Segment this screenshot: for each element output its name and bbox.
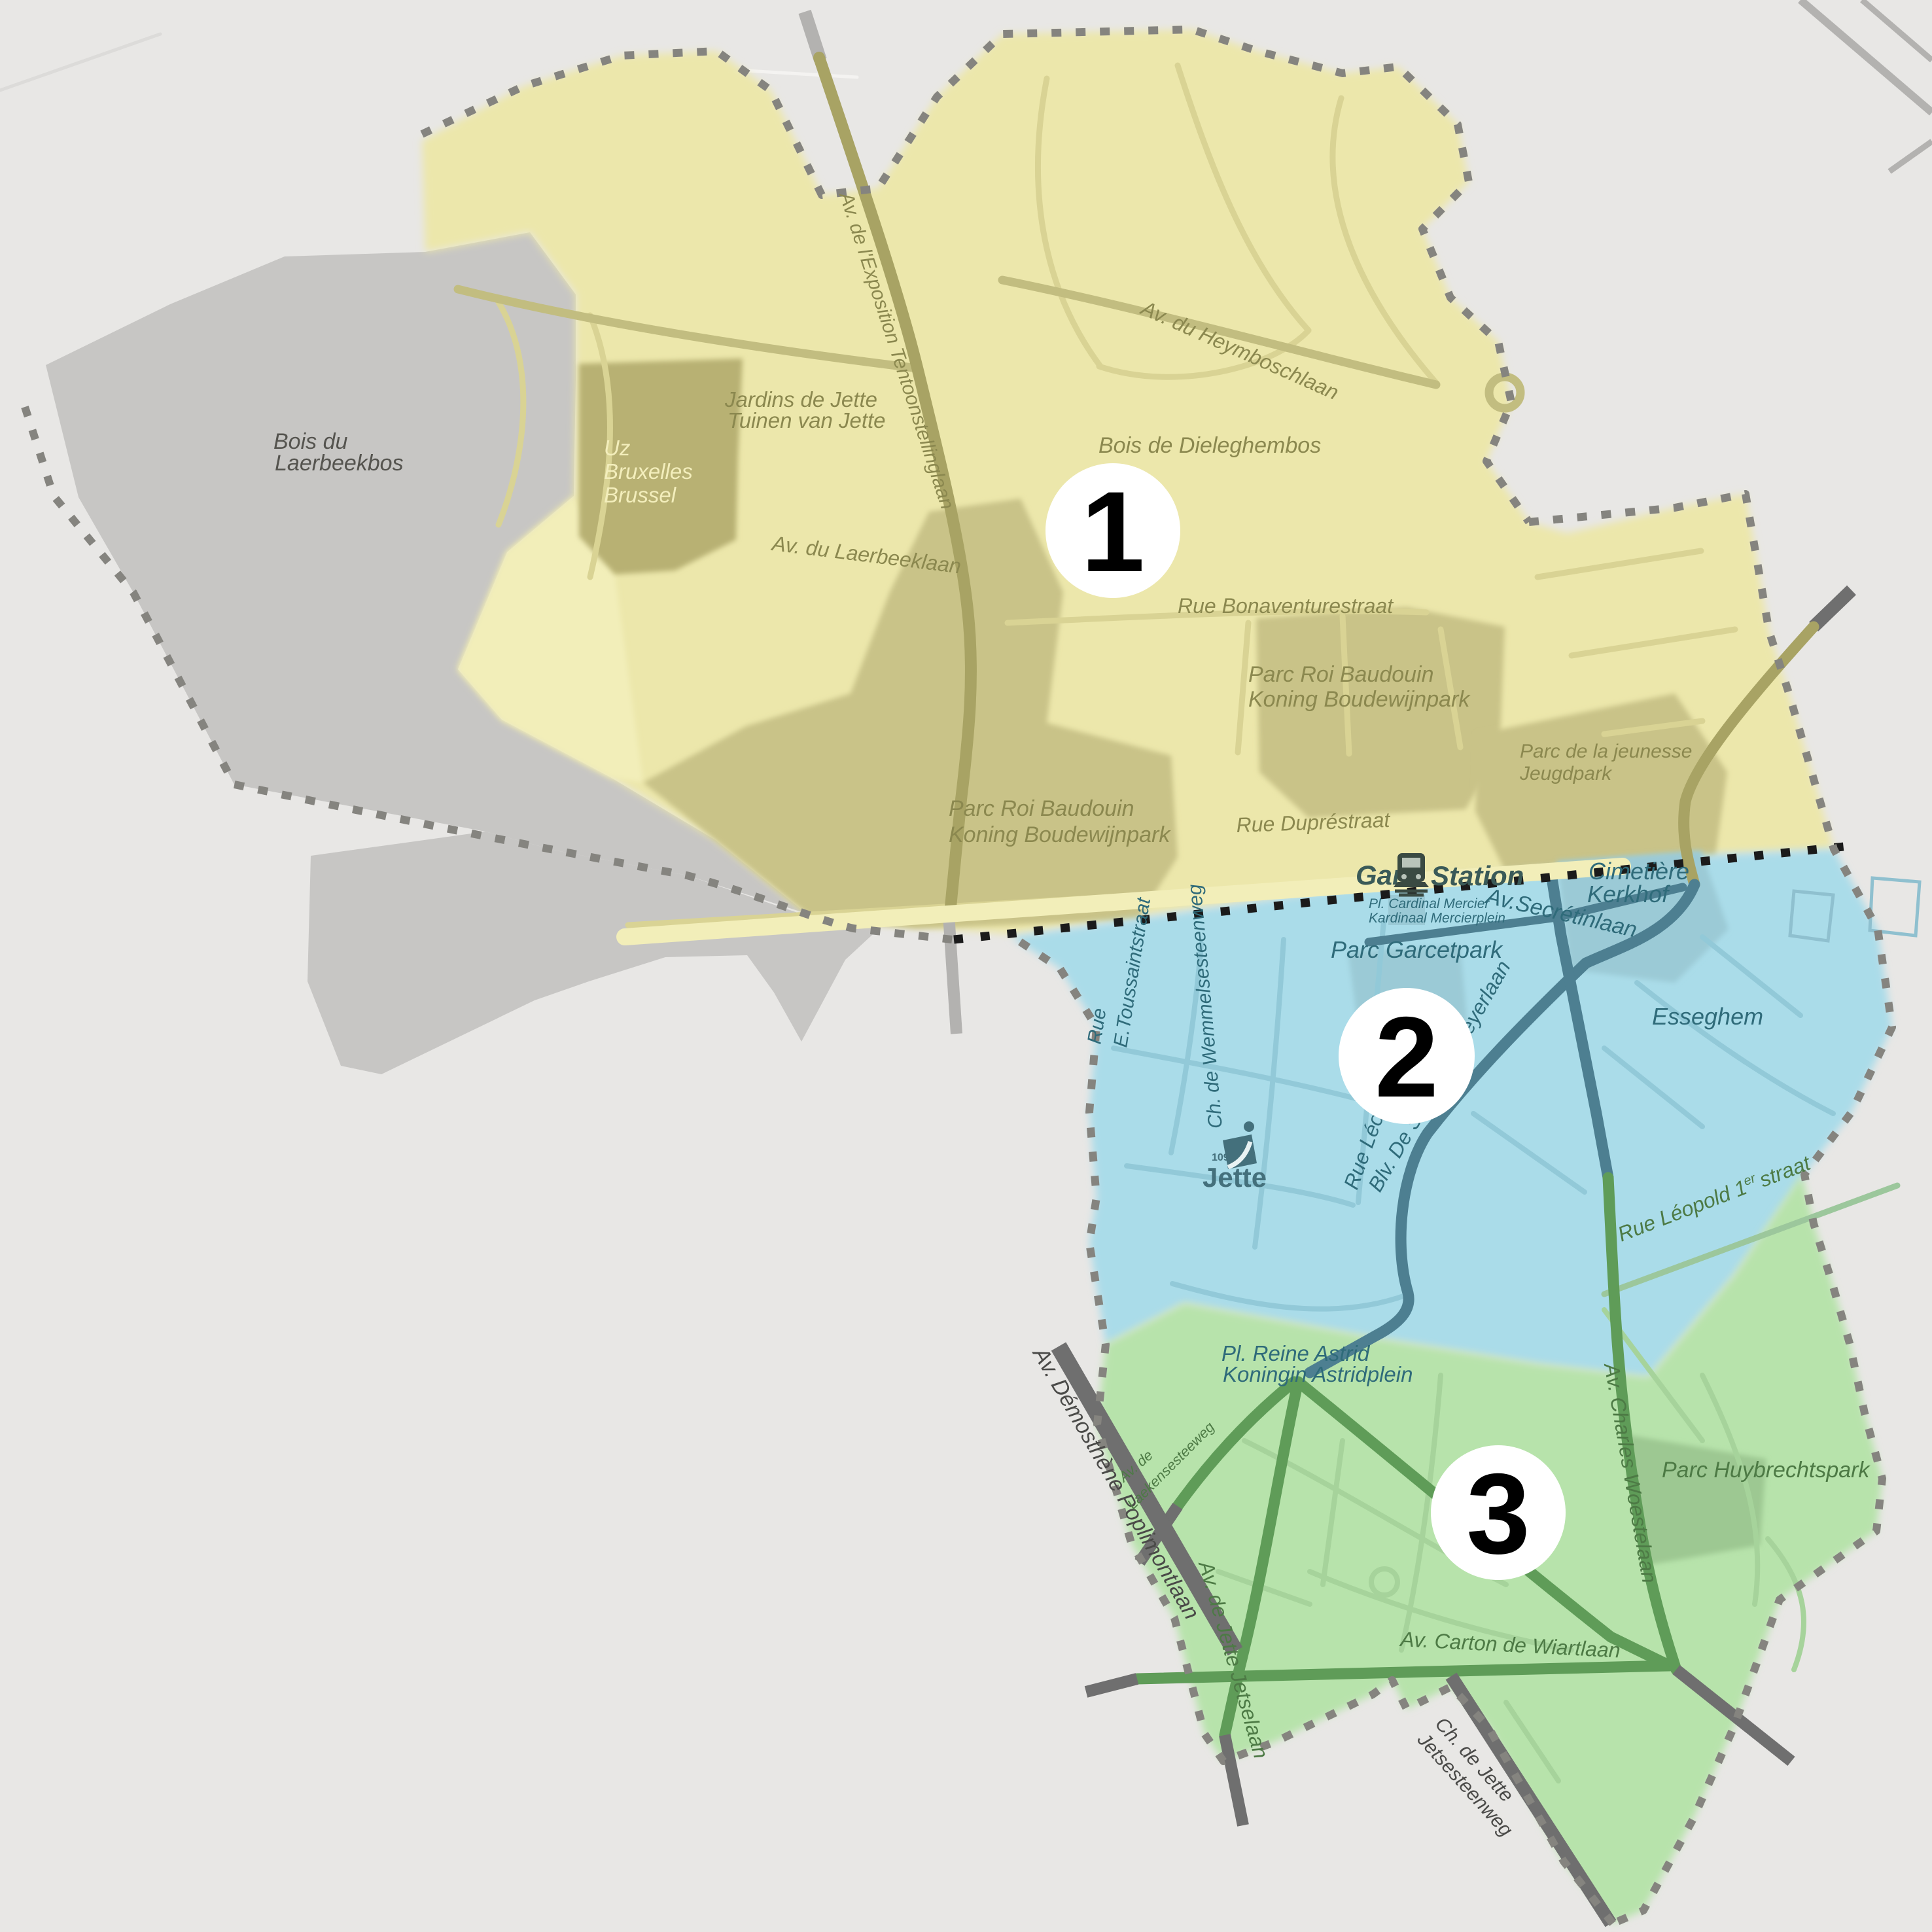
label-uz-line1: Uz [604, 436, 631, 460]
label-esseghem: Esseghem [1652, 1003, 1763, 1030]
background-road [1800, 0, 1932, 113]
label-prb-west-line1: Parc Roi Baudouin [949, 796, 1134, 821]
background-road [1889, 141, 1932, 171]
zone-1-number: 1 [1081, 468, 1144, 596]
zone-3-number: 3 [1466, 1450, 1530, 1578]
label-bois-laerbeek-line2: Laerbeekbos [275, 451, 404, 476]
train-window [1402, 858, 1420, 868]
exposition-road-south [949, 915, 957, 1034]
label-prb-east-line2: Koning Boudewijnpark [1248, 687, 1471, 712]
jette-logo-name: Jette [1203, 1162, 1267, 1193]
label-astrid-line2: Koningin Astridplein [1223, 1362, 1413, 1386]
label-mercier-line1: Pl. Cardinal Mercier [1369, 896, 1490, 911]
train-pilot [1394, 882, 1429, 887]
background-road [1862, 0, 1932, 60]
label-dieleghembos: Bois de Dieleghembos [1098, 433, 1321, 458]
label-uz-line2: Bruxelles [604, 459, 693, 483]
label-jeugdpark-line1: Parc de la jeunesse [1520, 741, 1693, 762]
jette-logo-dot [1244, 1121, 1254, 1132]
label-uz-line3: Brussel [604, 483, 677, 507]
label-prb-west-line2: Koning Boudewijnpark [949, 822, 1171, 847]
background-road [0, 34, 160, 90]
label-cimetiere-line2: Kerkhof [1587, 881, 1671, 907]
train-light [1416, 874, 1421, 879]
label-jardins-line2: Tuinen van Jette [728, 408, 886, 432]
zone-2-number: 2 [1375, 994, 1438, 1121]
zone-3-badge: 3 [1431, 1445, 1566, 1580]
label-station: Station [1431, 860, 1524, 891]
parc-roi-baudouin-east-area [1256, 607, 1505, 818]
label-jeugdpark-line2: Jeugdpark [1519, 763, 1613, 784]
label-bonaventure: Rue Bonaventurestraat [1178, 594, 1394, 618]
label-prb-east-line1: Parc Roi Baudouin [1248, 662, 1434, 687]
zone-2-badge: 2 [1339, 988, 1475, 1124]
label-mercier-line2: Kardinaal Mercierplein [1369, 911, 1505, 926]
train-light [1401, 874, 1407, 879]
north-east-road-stub [1814, 590, 1852, 627]
label-garcetpark: Parc Garcetpark [1331, 936, 1503, 963]
jette-zones-map: Bois du Laerbeekbos Uz Bruxelles Brussel… [0, 0, 1932, 1932]
zone-1-badge: 1 [1045, 463, 1180, 598]
label-huybrechtspark: Parc Huybrechtspark [1662, 1458, 1871, 1483]
